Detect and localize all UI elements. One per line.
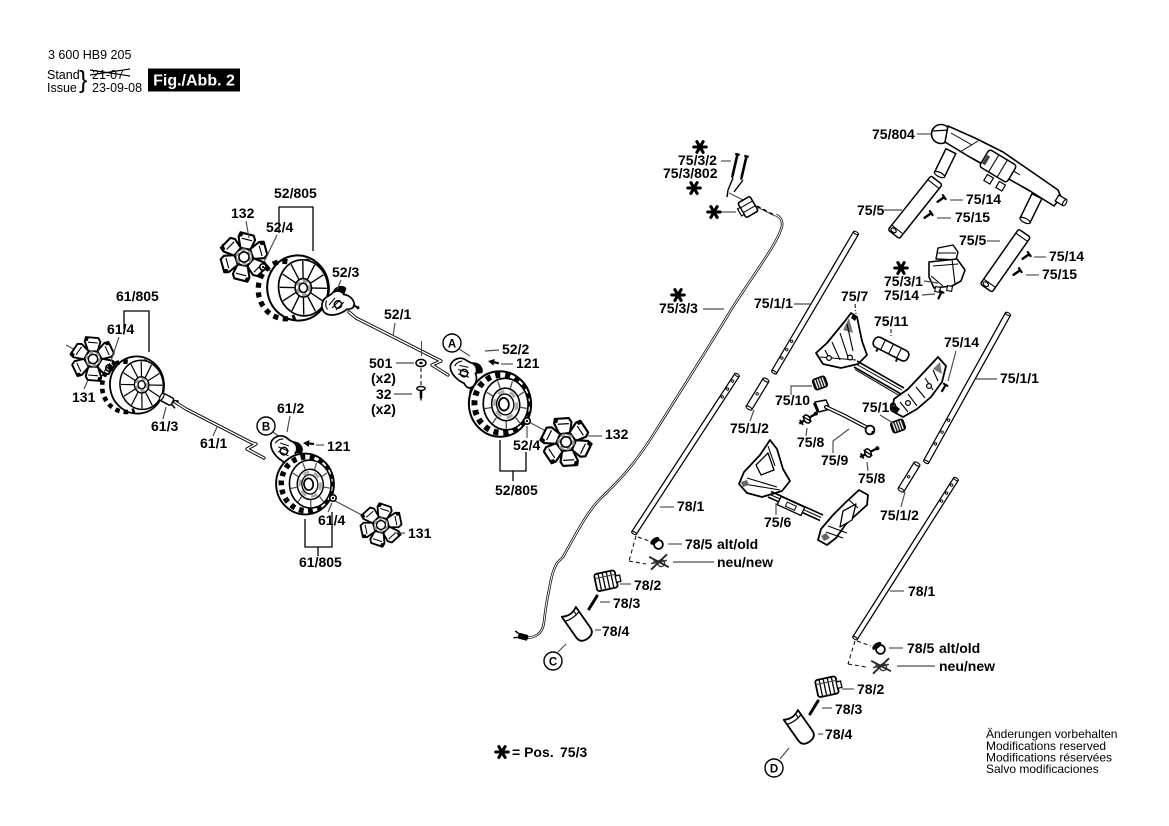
svg-text:(x2): (x2) xyxy=(371,401,396,417)
svg-text:75/804: 75/804 xyxy=(872,126,915,142)
svg-text:(x2): (x2) xyxy=(371,370,396,386)
svg-text:52/805: 52/805 xyxy=(495,482,538,498)
svg-text:75/9: 75/9 xyxy=(821,452,848,468)
svg-text:75/1/1: 75/1/1 xyxy=(754,295,793,311)
svg-text:132: 132 xyxy=(605,426,629,442)
svg-text:78/2: 78/2 xyxy=(857,681,884,697)
svg-text:75/15: 75/15 xyxy=(1042,266,1077,282)
svg-text:75/1/2: 75/1/2 xyxy=(730,420,769,436)
svg-text:75/3/3: 75/3/3 xyxy=(659,300,698,316)
svg-text:78/2: 78/2 xyxy=(634,577,661,593)
svg-text:78/5: 78/5 xyxy=(685,536,712,552)
svg-text:61/805: 61/805 xyxy=(116,288,159,304)
svg-text:61/2: 61/2 xyxy=(277,400,304,416)
svg-text:75/14: 75/14 xyxy=(884,287,919,303)
svg-text:A: A xyxy=(448,339,456,351)
svg-text:neu/new: neu/new xyxy=(939,658,995,674)
svg-text:75/11: 75/11 xyxy=(874,313,908,329)
svg-text:75/14: 75/14 xyxy=(944,334,979,350)
svg-text:32: 32 xyxy=(376,386,392,402)
svg-text:61/1: 61/1 xyxy=(200,435,227,451)
svg-text:75/1/1: 75/1/1 xyxy=(1000,370,1039,386)
svg-text:75/3: 75/3 xyxy=(560,744,587,760)
svg-text:78/3: 78/3 xyxy=(835,701,862,717)
svg-text:52/4: 52/4 xyxy=(513,437,540,453)
svg-text:52/3: 52/3 xyxy=(332,264,359,280)
svg-text:78/1: 78/1 xyxy=(677,498,704,514)
svg-text:121: 121 xyxy=(327,438,351,454)
svg-text:C: C xyxy=(549,657,557,669)
svg-text:75/8: 75/8 xyxy=(858,470,885,486)
svg-text:78/4: 78/4 xyxy=(602,623,629,639)
svg-text:78/1: 78/1 xyxy=(908,583,935,599)
svg-text:3 600 HB9 205: 3 600 HB9 205 xyxy=(48,48,131,62)
svg-text:}: } xyxy=(79,66,87,94)
svg-text:Fig./Abb. 2: Fig./Abb. 2 xyxy=(153,73,235,90)
svg-text:75/14: 75/14 xyxy=(1049,248,1084,264)
svg-text:B: B xyxy=(262,422,270,434)
svg-text:75/15: 75/15 xyxy=(955,209,990,225)
svg-text:78/4: 78/4 xyxy=(825,726,852,742)
svg-text:= Pos.: = Pos. xyxy=(512,744,554,760)
svg-text:23-09-08: 23-09-08 xyxy=(92,81,142,95)
svg-text:52/4: 52/4 xyxy=(266,219,293,235)
svg-text:501: 501 xyxy=(369,355,393,371)
svg-text:121: 121 xyxy=(516,355,540,371)
svg-text:61/4: 61/4 xyxy=(107,321,134,337)
svg-text:78/5: 78/5 xyxy=(907,640,934,656)
svg-text:61/3: 61/3 xyxy=(151,418,178,434)
svg-text:75/10: 75/10 xyxy=(862,399,897,415)
svg-text:52/805: 52/805 xyxy=(274,185,317,201)
svg-text:132: 132 xyxy=(231,205,255,221)
svg-text:Stand: Stand xyxy=(47,68,80,82)
svg-text:131: 131 xyxy=(72,389,96,405)
svg-text:75/6: 75/6 xyxy=(764,514,791,530)
svg-text:neu/new: neu/new xyxy=(717,554,773,570)
svg-text:75/8: 75/8 xyxy=(797,434,824,450)
svg-text:Salvo modificaciones: Salvo modificaciones xyxy=(986,762,1099,776)
svg-text:75/14: 75/14 xyxy=(966,191,1001,207)
svg-text:78/3: 78/3 xyxy=(613,595,640,611)
svg-text:52/1: 52/1 xyxy=(384,306,411,322)
svg-text:75/10: 75/10 xyxy=(775,392,810,408)
svg-text:D: D xyxy=(770,764,778,776)
svg-text:75/5: 75/5 xyxy=(857,202,884,218)
svg-text:75/5: 75/5 xyxy=(959,232,986,248)
svg-text:alt/old: alt/old xyxy=(717,536,758,552)
svg-text:Issue: Issue xyxy=(47,81,77,95)
svg-text:131: 131 xyxy=(408,525,432,541)
svg-text:75/1/2: 75/1/2 xyxy=(880,507,919,523)
svg-text:alt/old: alt/old xyxy=(939,640,980,656)
svg-text:75/7: 75/7 xyxy=(841,288,868,304)
svg-text:61/805: 61/805 xyxy=(299,554,342,570)
svg-text:75/3/802: 75/3/802 xyxy=(663,165,718,181)
